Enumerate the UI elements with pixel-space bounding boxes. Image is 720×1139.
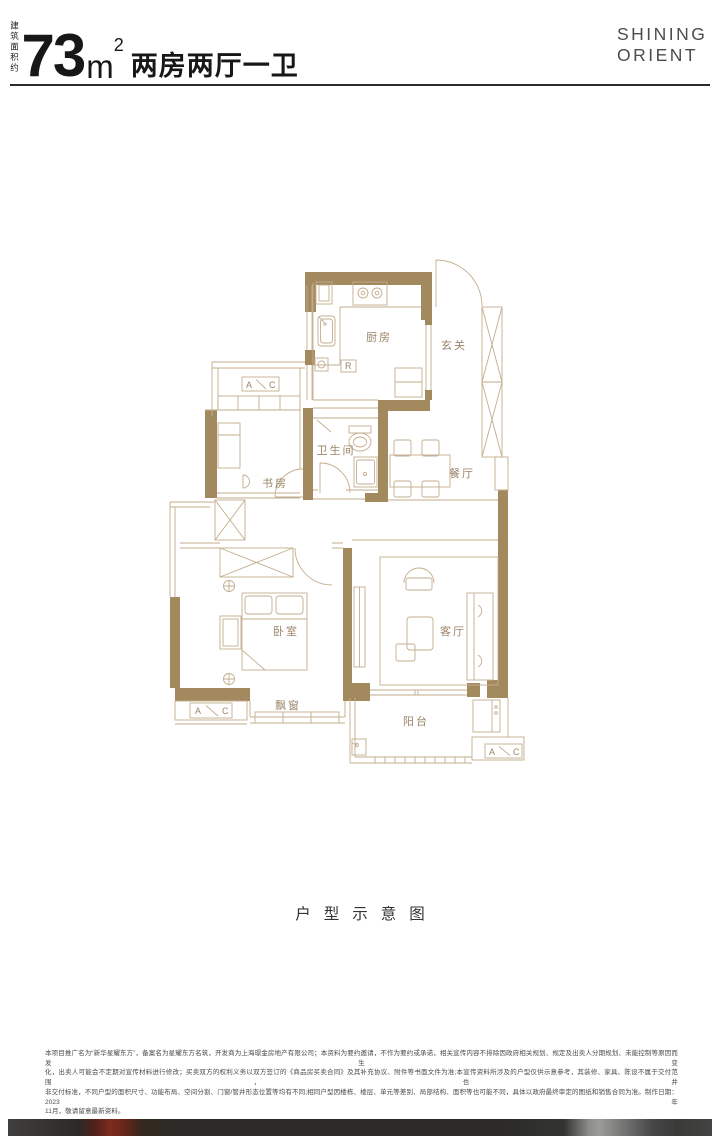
ac-marker-c: C xyxy=(513,747,520,757)
disclaimer-line: 11月，敬请留意最新资料。 xyxy=(45,1107,678,1117)
washer-icon xyxy=(473,700,500,732)
disclaimer-line: 本项目推广名为“新华星耀东方”，备案名为星耀东方名筑，开发商为上海璟金房地产有限… xyxy=(45,1049,678,1068)
floor-plan: A C A C A C R 厨房 玄关 卫生间 餐厅 书房 卧室 客厅 飘窗 阳… xyxy=(165,250,545,800)
appliance-box-icon xyxy=(315,358,328,371)
kitchen-sink-icon xyxy=(318,316,335,346)
area-prefix-vertical: 建筑面积约 xyxy=(10,21,19,77)
room-label-kitchen: 厨房 xyxy=(366,331,392,344)
area-unit-superscript: 2 xyxy=(114,36,124,54)
ac-marker-bedroom-bay: A C xyxy=(190,703,232,718)
room-label-study: 书房 xyxy=(262,477,288,490)
floorplan-poster-page: 建筑面积约 73 m 2 两房两厅一卫 SHINING ORIENT xyxy=(0,0,720,1139)
area-unit: m xyxy=(86,54,114,80)
header-title: 建筑面积约 73 m 2 两房两厅一卫 xyxy=(10,20,299,80)
ac-marker-a: A xyxy=(489,747,495,757)
disclaimer-text: 本项目推广名为“新华星耀东方”，备案名为星耀东方名筑，开发商为上海璟金房地产有限… xyxy=(45,1049,678,1117)
plan-caption: 户型示意图 xyxy=(0,902,720,924)
room-label-balcony: 阳台 xyxy=(403,714,429,728)
ac-marker-a: A xyxy=(246,380,252,390)
vanity-icon xyxy=(354,457,377,487)
brand-line1: SHINING xyxy=(617,24,707,45)
nightstand xyxy=(220,616,241,649)
ac-marker-a: A xyxy=(195,706,201,716)
footer-photo-strip xyxy=(8,1119,712,1136)
stove-icon xyxy=(353,282,387,305)
ceiling-fixture-icon xyxy=(224,581,235,685)
brand-logotype: SHINING ORIENT xyxy=(617,24,707,66)
room-label-bay-window: 飘窗 xyxy=(275,698,301,712)
ac-marker-study-bay: A C xyxy=(242,377,279,391)
header-divider xyxy=(10,84,710,86)
ac-marker-balcony: A C xyxy=(485,744,522,758)
ac-marker-c: C xyxy=(222,706,229,716)
disclaimer-line: 非交付标准，不同户型的面积尺寸、功能布局、空间分割、门窗/管井形态位置等均有不同… xyxy=(45,1088,678,1107)
fridge-icon xyxy=(316,282,332,304)
coffee-table xyxy=(407,617,433,650)
room-labels: 厨房 玄关 卫生间 餐厅 书房 卧室 客厅 飘窗 阳台 xyxy=(262,331,475,728)
room-label-living: 客厅 xyxy=(440,624,466,638)
study-bed xyxy=(218,423,240,468)
room-label-bedroom: 卧室 xyxy=(273,624,299,638)
r-marker: R xyxy=(345,361,352,371)
disclaimer-line: 化，出卖人可能会不定期对宣传材料进行修改；买卖双方的权利义务以双方签订的《商品房… xyxy=(45,1068,678,1087)
armchair xyxy=(404,568,434,590)
tv-cabinet xyxy=(467,593,493,680)
room-label-dining: 餐厅 xyxy=(449,466,475,480)
room-label-bathroom: 卫生间 xyxy=(317,443,356,457)
wardrobe xyxy=(220,548,293,577)
layout-title: 两房两厅一卫 xyxy=(131,54,299,80)
mop-sink-icon xyxy=(352,739,366,755)
room-label-foyer: 玄关 xyxy=(441,338,467,352)
ac-marker-c: C xyxy=(269,380,276,390)
dining-set xyxy=(390,440,450,497)
side-table xyxy=(396,644,415,661)
study-desk xyxy=(243,475,250,488)
brand-line2: ORIENT xyxy=(617,45,707,66)
area-value: 73 xyxy=(22,33,85,80)
